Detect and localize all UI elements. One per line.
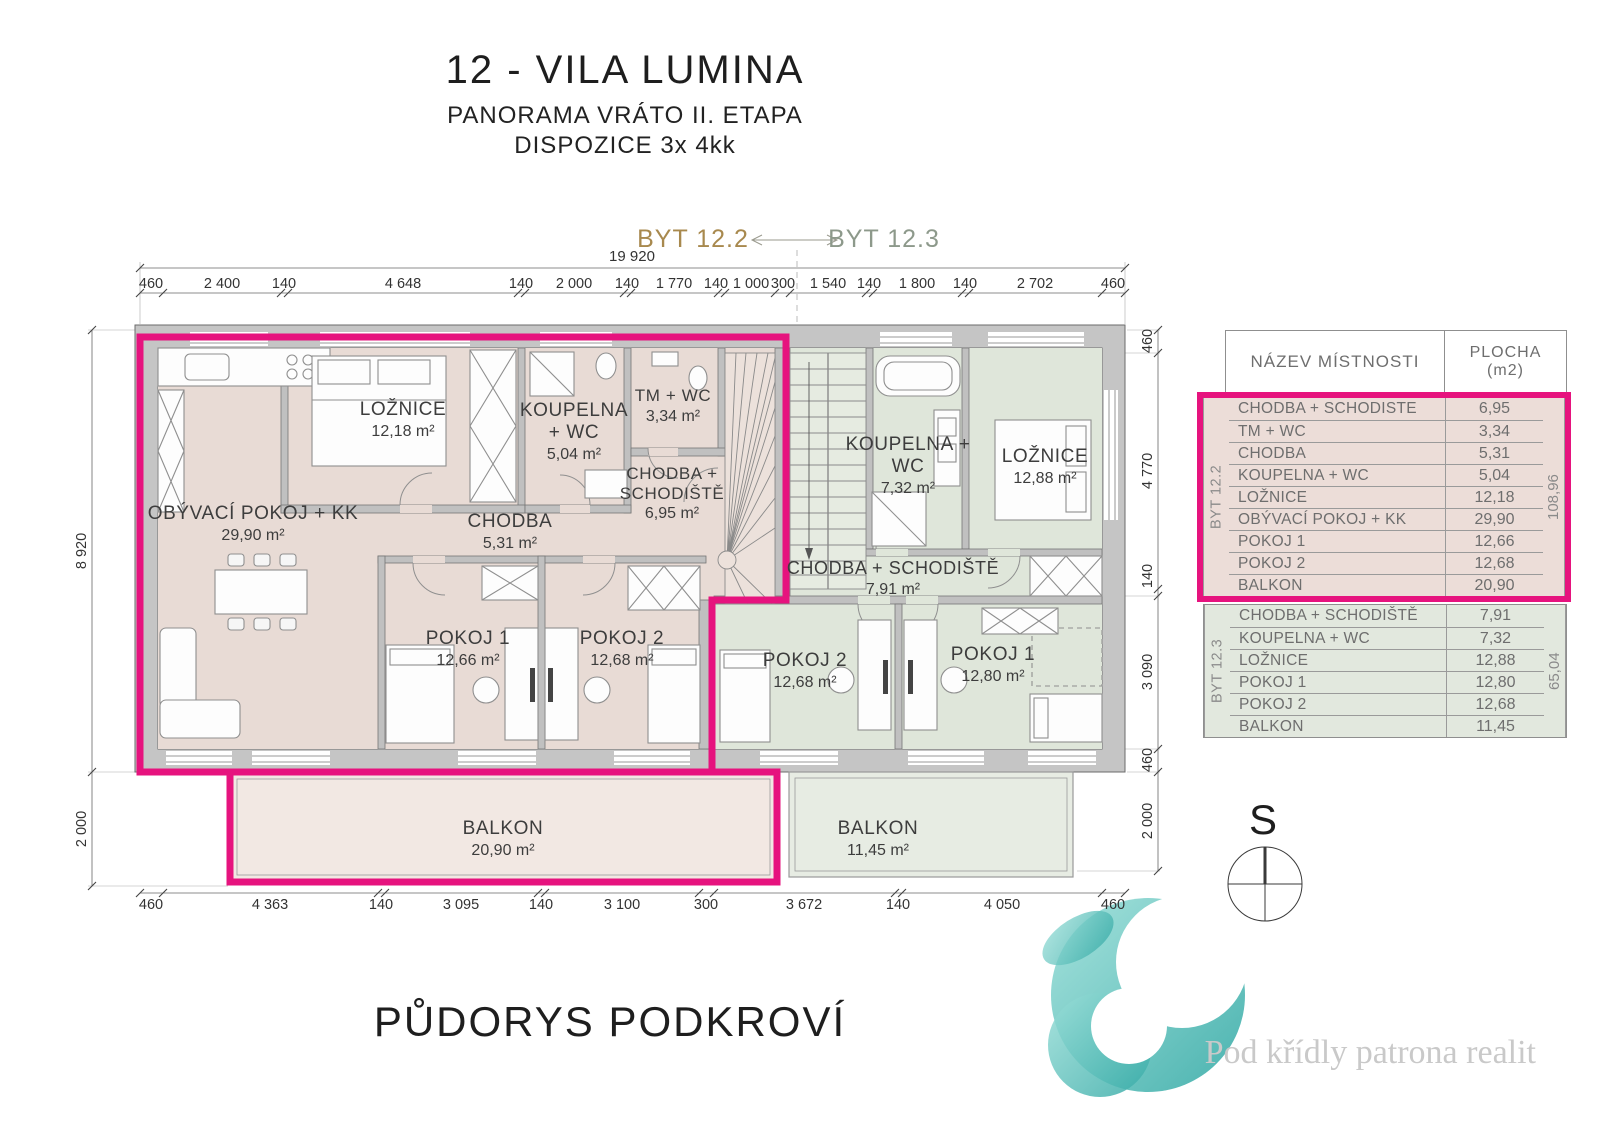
- dim-top: 140: [509, 276, 533, 292]
- table-cell: POKOJ 1: [1230, 671, 1446, 693]
- dim-right: 2 000: [1140, 803, 1156, 839]
- table-group-label: BYT 12.3: [1204, 605, 1230, 737]
- compass-icon: [1228, 847, 1302, 921]
- room-label-koupelna-123: KOUPELNA + WC7,32 m²: [843, 434, 973, 498]
- room-label-obyvaci-pokoj-122: OBÝVACÍ POKOJ + KK29,90 m²: [148, 503, 359, 545]
- room-label-loznice-122: LOŽNICE12,18 m²: [360, 399, 447, 441]
- dim-top: 460: [139, 276, 163, 292]
- dim-bottom: 300: [694, 897, 718, 913]
- dim-top: 1 540: [810, 276, 846, 292]
- table-cell: TM + WC: [1229, 420, 1445, 442]
- dim-top: 140: [704, 276, 728, 292]
- dim-right: 460: [1140, 329, 1156, 353]
- room-label-balkon-123: BALKON11,45 m²: [838, 818, 919, 860]
- room-label-chodba-122: CHODBA5,31 m²: [468, 511, 553, 553]
- plan-title: PŮDORYS PODKROVÍ: [374, 998, 846, 1046]
- table-cell: 20,90: [1445, 574, 1543, 596]
- table-group-byt-12-3: BYT 12.3 CHODBA + SCHODIŠTĚ7,91 KOUPELNA…: [1203, 604, 1567, 738]
- table-cell: 11,45: [1446, 715, 1544, 737]
- table-cell: KOUPELNA + WC: [1229, 464, 1445, 486]
- dim-right: 3 090: [1140, 654, 1156, 690]
- dim-bottom: 460: [139, 897, 163, 913]
- table-cell: CHODBA + SCHODISTE: [1229, 398, 1445, 420]
- dim-bottom: 140: [369, 897, 393, 913]
- table-cell: 3,34: [1445, 420, 1543, 442]
- watermark-text: Pod křídly patrona realit: [1205, 1034, 1536, 1072]
- table-col-name: NÁZEV MÍSTNOSTI: [1226, 331, 1445, 393]
- room-label-pokoj1-123: POKOJ 112,80 m²: [951, 644, 1035, 686]
- dim-top: 1 770: [656, 276, 692, 292]
- table-cell: 12,80: [1446, 671, 1544, 693]
- dim-top: 140: [615, 276, 639, 292]
- dim-bottom: 140: [529, 897, 553, 913]
- table-cell: POKOJ 2: [1230, 693, 1446, 715]
- table-group-byt-12-2: BYT 12.2 CHODBA + SCHODISTE6,95 TM + WC3…: [1197, 392, 1571, 602]
- dim-top: 300: [771, 276, 795, 292]
- dim-top: 2 702: [1017, 276, 1053, 292]
- dim-top: 140: [953, 276, 977, 292]
- dim-top: 460: [1101, 276, 1125, 292]
- room-label-pokoj2-123: POKOJ 212,68 m²: [763, 650, 847, 692]
- table-cell: 6,95: [1445, 398, 1543, 420]
- dim-bottom: 3 095: [443, 897, 479, 913]
- table-cell: BALKON: [1229, 574, 1445, 596]
- table-cell: 12,66: [1445, 530, 1543, 552]
- table-cell: 7,32: [1446, 627, 1544, 649]
- page-subtitle-2: DISPOZICE 3x 4kk: [514, 132, 735, 160]
- page-title: 12 - VILA LUMINA: [446, 48, 805, 93]
- dim-right: 460: [1140, 748, 1156, 772]
- table-cell: 5,31: [1445, 442, 1543, 464]
- table-cell: 12,18: [1445, 486, 1543, 508]
- building-walls: [135, 325, 1125, 772]
- table-cell: 7,91: [1446, 605, 1544, 627]
- room-label-tm-wc-122: TM + WC3,34 m²: [635, 386, 711, 426]
- dim-bottom: 140: [886, 897, 910, 913]
- table-group-total: 65,04: [1544, 605, 1566, 737]
- table-cell: POKOJ 2: [1229, 552, 1445, 574]
- dim-top: 1 800: [899, 276, 935, 292]
- dim-top: 140: [272, 276, 296, 292]
- room-label-chodba-schodiste-123: CHODBA + SCHODIŠTĚ7,91 m²: [787, 558, 999, 599]
- table-cell: BALKON: [1230, 715, 1446, 737]
- table-cell: OBÝVACÍ POKOJ + KK: [1229, 508, 1445, 530]
- table-cell: KOUPELNA + WC: [1230, 627, 1446, 649]
- table-cell: LOŽNICE: [1230, 649, 1446, 671]
- dim-top: 1 000: [733, 276, 769, 292]
- table-cell: 12,88: [1446, 649, 1544, 671]
- table-cell: 29,90: [1445, 508, 1543, 530]
- room-label-pokoj2-122: POKOJ 212,68 m²: [580, 628, 664, 670]
- dim-right: 140: [1140, 564, 1156, 588]
- floor-plan-page: 12 - VILA LUMINA PANORAMA VRÁTO II. ETAP…: [0, 0, 1600, 1131]
- room-label-koupelna-122: KOUPELNA + WC5,04 m²: [514, 400, 634, 464]
- dim-bottom: 3 672: [786, 897, 822, 913]
- table-cell: LOŽNICE: [1229, 486, 1445, 508]
- page-subtitle-1: PANORAMA VRÁTO II. ETAPA: [447, 102, 803, 130]
- dim-top: 140: [857, 276, 881, 292]
- dim-top-total: 19 920: [609, 248, 655, 265]
- dim-right: 4 770: [1140, 453, 1156, 489]
- dim-left: 2 000: [74, 811, 90, 847]
- room-label-chodba-schodiste-122: CHODBA + SCHODIŠTĚ6,95 m²: [607, 464, 737, 523]
- dim-left: 8 920: [74, 533, 90, 569]
- table-cell: 5,04: [1445, 464, 1543, 486]
- table-cell: CHODBA: [1229, 442, 1445, 464]
- compass-north-letter: S: [1249, 796, 1277, 844]
- dim-bottom: 3 100: [604, 897, 640, 913]
- table-cell: 12,68: [1446, 693, 1544, 715]
- table-group-label: BYT 12.2: [1203, 398, 1229, 596]
- dim-top: 2 400: [204, 276, 240, 292]
- dim-bottom: 460: [1101, 897, 1125, 913]
- room-label-loznice-123: LOŽNICE12,88 m²: [1002, 446, 1089, 488]
- table-col-area: PLOCHA (m2): [1445, 331, 1566, 393]
- table-group-total: 108,96: [1543, 398, 1565, 596]
- room-label-pokoj1-122: POKOJ 112,66 m²: [426, 628, 510, 670]
- unit-label-byt-12-3: BYT 12.3: [828, 225, 940, 254]
- balconies: [230, 772, 1073, 882]
- room-table-header: NÁZEV MÍSTNOSTI PLOCHA (m2): [1225, 330, 1567, 394]
- dim-top: 4 648: [385, 276, 421, 292]
- dim-bottom: 4 363: [252, 897, 288, 913]
- dim-bottom: 4 050: [984, 897, 1020, 913]
- room-label-balkon-122: BALKON20,90 m²: [463, 818, 544, 860]
- table-cell: CHODBA + SCHODIŠTĚ: [1230, 605, 1446, 627]
- table-cell: POKOJ 1: [1229, 530, 1445, 552]
- table-cell: 12,68: [1445, 552, 1543, 574]
- dim-top: 2 000: [556, 276, 592, 292]
